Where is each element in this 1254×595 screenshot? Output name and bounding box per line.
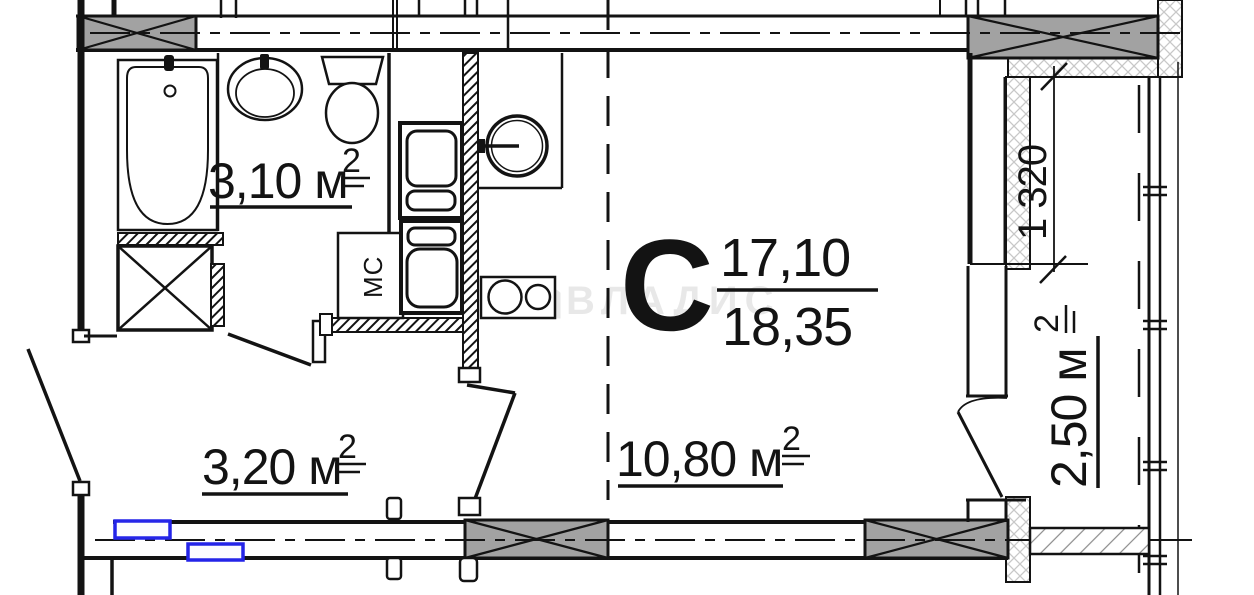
balcony-area-label: 2,50 м 2 [1028, 305, 1098, 488]
radiator-2 [188, 544, 243, 560]
main-room-area-text: 10,80 м [616, 431, 782, 487]
hallway-area-text: 3,20 м [202, 439, 342, 495]
insulated-wall-bands [1006, 0, 1182, 582]
balcony-area-text: 2,50 м [1041, 348, 1097, 488]
unit-living-area: 17,10 [720, 228, 850, 288]
balcony-door-leaf [958, 412, 1002, 497]
balcony-area-sup: 2 [1028, 314, 1066, 333]
kitchen-partition-strip [325, 318, 463, 332]
floor-plan-svg: ВЛАДИС [0, 0, 1254, 595]
washbasin-faucet [260, 54, 269, 69]
door-jamb [320, 314, 332, 335]
balcony: 1 320 2,50 м 2 [1008, 62, 1192, 595]
bathroom-door-leaf [228, 334, 311, 365]
column-box-top-right [968, 16, 1158, 58]
hallway-area-sup: 2 [338, 428, 357, 466]
bathroom-area-text: 3,10 м [208, 153, 348, 209]
toilet [322, 57, 383, 143]
kitchen-partition-wall [463, 53, 478, 368]
hallway-area-label: 3,20 м 2 [202, 428, 366, 495]
balcony-door [958, 398, 1007, 497]
angled-wall [467, 385, 515, 393]
kitchen-appliance-column [400, 123, 462, 313]
vent-shaft [118, 233, 224, 330]
main-room-area-label: 10,80 м 2 [616, 420, 810, 487]
bathroom: 3,10 м 2 [118, 53, 389, 233]
unit-designation: С 17,10 18,35 [620, 212, 878, 358]
angled-wall [470, 393, 515, 512]
main-room-area-sup: 2 [782, 420, 801, 458]
washbasin [228, 54, 302, 120]
stove [481, 277, 555, 318]
balcony-window [1139, 62, 1178, 595]
radiator-1 [115, 521, 170, 538]
balcony-width-text: 1 320 [1011, 145, 1055, 240]
bathtub-drain [165, 86, 176, 97]
door-jamb [459, 498, 480, 515]
door-jamb [73, 482, 89, 495]
floor-plan-page: ВЛАДИС [0, 0, 1254, 595]
left-wall [28, 0, 117, 595]
balcony-floor-strip [1030, 528, 1149, 554]
unit-total-area: 18,35 [722, 297, 852, 357]
bathroom-area-sup: 2 [342, 142, 361, 180]
balcony-door-swing [958, 398, 1007, 412]
washing-machine-label: МС [358, 256, 388, 298]
bathtub-faucet [164, 55, 174, 71]
kitchen-sink [477, 116, 547, 176]
bathroom-area-label: 3,10 м 2 [208, 142, 370, 209]
bathtub [118, 55, 217, 230]
unit-type-letter: С [620, 212, 714, 358]
top-wall [76, 0, 1005, 52]
bathroom-door [228, 321, 325, 365]
washing-machine-box: МС [338, 233, 403, 318]
door-jamb [459, 368, 480, 382]
entrance-door-leaf [28, 349, 80, 481]
